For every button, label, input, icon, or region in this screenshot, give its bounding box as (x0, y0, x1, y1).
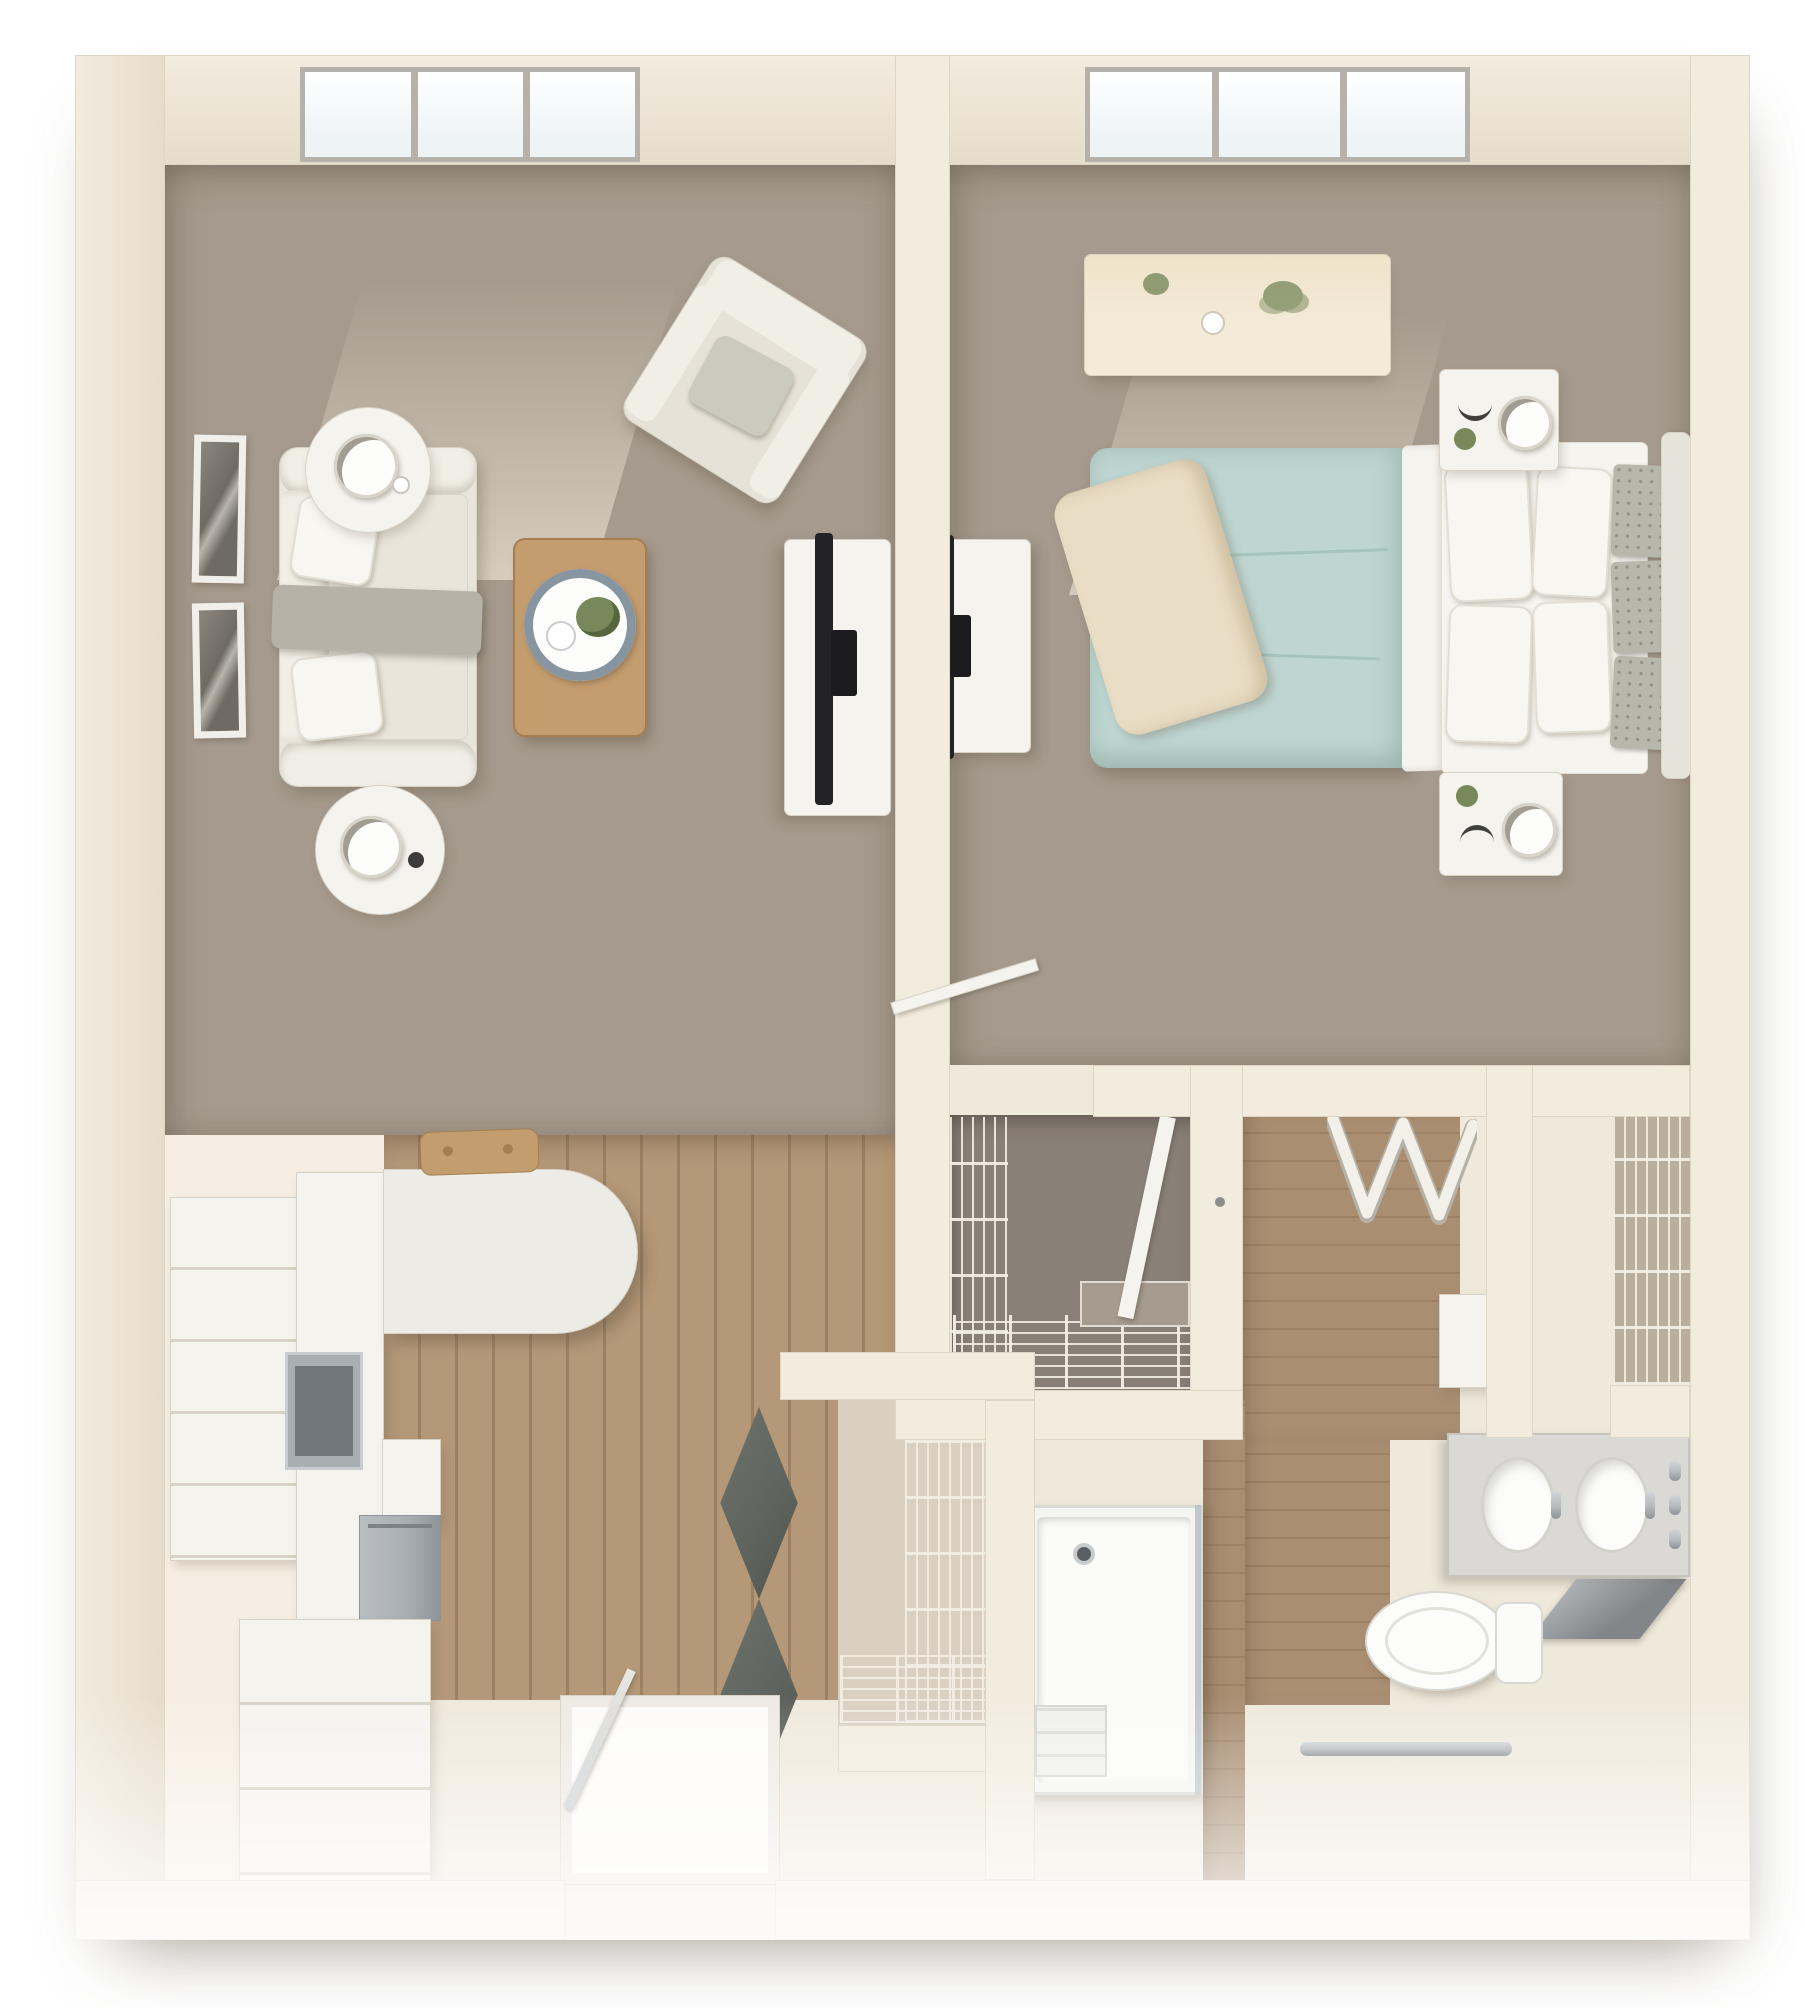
kitchen-base-cabinet (240, 1620, 430, 1880)
faucet-handles (1669, 1495, 1681, 1515)
sink-left (1481, 1457, 1555, 1553)
wardrobe-return-panel (1440, 1295, 1492, 1387)
tray-plant (576, 597, 620, 637)
toilet-seat-line (1385, 1607, 1489, 1675)
sofa-arm-bottom (280, 740, 476, 786)
bed (1090, 433, 1690, 778)
bed-pillow (1443, 461, 1534, 603)
faucet-left (1551, 1491, 1561, 1519)
wall-utility-top (780, 1352, 1035, 1400)
utility-wire-shelf-bottom (840, 1655, 985, 1723)
shower-glass-panel (1195, 1505, 1201, 1795)
sofa-pillow-bottom (289, 649, 385, 743)
tv-mount-living (831, 630, 857, 696)
roll-in-shower (1025, 1505, 1203, 1795)
floor-plan (75, 55, 1750, 1940)
wall-closet-right (1190, 1065, 1243, 1440)
nightstand-plant (1456, 785, 1478, 807)
wall-left (75, 55, 165, 1940)
wall-entry-bath-divider (985, 1400, 1035, 1880)
wall-oven (285, 1352, 363, 1470)
bed-headboard (1662, 433, 1690, 778)
nightstand-bottom (1440, 773, 1562, 875)
sofa-throw-blanket (271, 584, 483, 655)
shower-side-wood-strip (1203, 1400, 1245, 1880)
tray-cup (548, 623, 574, 649)
nightstand-plant (1454, 428, 1476, 450)
tv-mount-bedroom (951, 615, 971, 677)
rack-knob (503, 1144, 513, 1154)
side-table-bottom (316, 786, 444, 914)
faucet-handles (1669, 1461, 1681, 1481)
faucet-handles (1669, 1529, 1681, 1549)
sink-right (1575, 1457, 1649, 1553)
bedroom-window (1085, 67, 1470, 162)
side-table-top (306, 408, 430, 532)
entry-door-mat (560, 1695, 780, 1885)
wall-right (1690, 55, 1750, 1940)
floor-plan-image (0, 0, 1805, 2008)
teacup (394, 478, 408, 492)
dresser-plant-right (1263, 281, 1303, 311)
wall-bottom-right-segment (775, 1880, 1750, 1940)
wall-bedroom-bottom (1093, 1065, 1690, 1117)
bed-pillow (1532, 600, 1613, 735)
wall-linen-bottom (1610, 1385, 1690, 1438)
window-mullion (411, 72, 418, 157)
bifold-wardrobe-doors (1327, 1111, 1477, 1233)
kitchen-tall-cabinet (171, 1198, 297, 1560)
bed-pillow (1445, 604, 1534, 745)
toilet-tank (1497, 1604, 1541, 1682)
dresser (1085, 255, 1390, 375)
bed-sheet-fold (1402, 444, 1446, 772)
wall-art-frame-top (192, 435, 247, 584)
table-lamp (340, 816, 402, 878)
decor-tray (524, 569, 636, 681)
nightstand-lamp (1498, 396, 1552, 450)
shower-seat (1035, 1705, 1107, 1777)
kitchen-counter-box (383, 1440, 440, 1525)
bed-pillow (1531, 465, 1614, 599)
faucet-right (1645, 1491, 1655, 1519)
nightstand-decor (1460, 825, 1494, 854)
oven-door-glass (295, 1366, 353, 1456)
living-room-window (300, 67, 640, 162)
toilet (1367, 1593, 1545, 1693)
vanity (1447, 1433, 1690, 1577)
nightstand-lamp (1502, 803, 1556, 857)
window-mullion (523, 72, 530, 157)
rack-knob (443, 1146, 453, 1156)
decor-dot (408, 852, 424, 868)
dresser-dish (1203, 313, 1223, 333)
dishwasher-handle (368, 1524, 432, 1528)
closet-door-knob (1215, 1197, 1225, 1207)
grab-bar (1300, 1742, 1512, 1756)
window-mullion (1340, 72, 1347, 157)
nightstand-decor (1458, 390, 1492, 421)
linen-wire-shelving (1613, 1117, 1690, 1385)
nightstand-top (1440, 370, 1558, 470)
window-mullion (1212, 72, 1219, 157)
table-lamp (334, 434, 398, 498)
wall-bottom-left-segment (75, 1880, 565, 1940)
wall-linen-left (1486, 1065, 1533, 1438)
shower-drain (1077, 1547, 1091, 1561)
peninsula-counter (384, 1170, 637, 1333)
coat-rack (420, 1129, 538, 1175)
wall-art-frame-bottom (192, 603, 246, 739)
dresser-plant-left (1143, 273, 1169, 295)
dishwasher (360, 1516, 440, 1620)
wall-divider-living-bedroom (895, 55, 950, 1390)
